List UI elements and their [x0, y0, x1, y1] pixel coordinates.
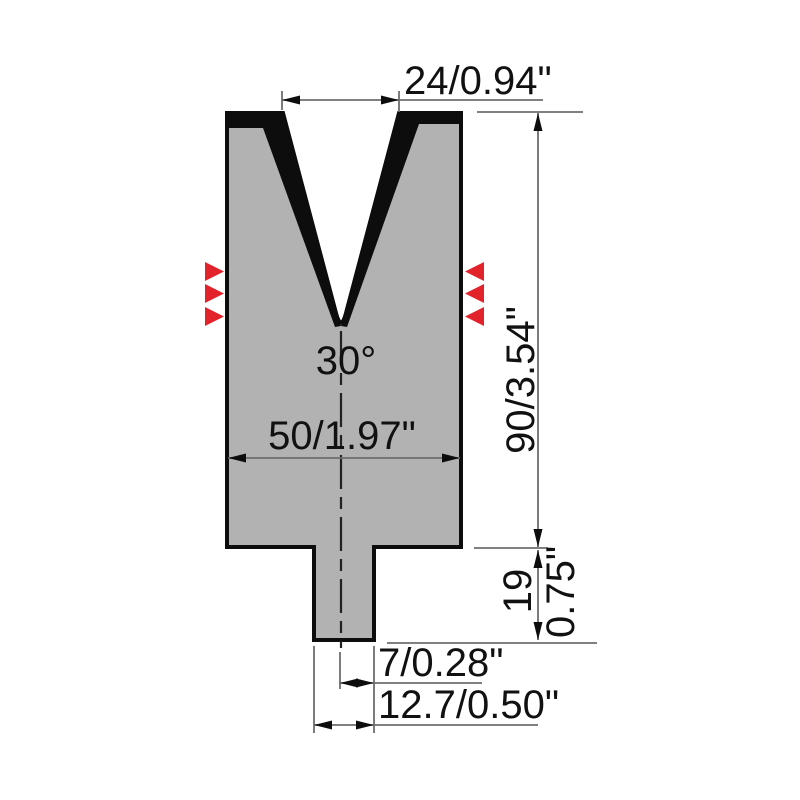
red-triangle-icon — [465, 307, 484, 326]
arrowhead-icon — [534, 529, 543, 547]
red-triangle-icon — [205, 262, 224, 281]
red-triangle-icon — [205, 284, 224, 303]
label-body-height: 90/3.54" — [499, 306, 543, 454]
label-v-angle: 30° — [316, 339, 377, 383]
label-tang-height-mm: 19 — [496, 569, 540, 614]
label-tang-width: 12.7/0.50" — [378, 683, 559, 727]
arrowhead-icon — [282, 96, 300, 105]
arrowhead-icon — [356, 721, 374, 730]
arrowhead-icon — [534, 113, 543, 131]
arrowhead-icon — [381, 96, 399, 105]
red-triangle-icon — [205, 307, 224, 326]
arrowhead-icon — [314, 721, 332, 730]
label-tang-height-in: 0.75" — [539, 546, 583, 638]
red-triangle-icon — [465, 284, 484, 303]
drawing-canvas: 24/0.94" 30° 50/1.97" 90/3.54" 19 0.75" … — [0, 0, 800, 800]
red-triangle-icon — [465, 262, 484, 281]
label-tang-half-width: 7/0.28" — [378, 641, 503, 685]
arrowhead-icon — [340, 679, 358, 688]
label-v-opening: 24/0.94" — [404, 59, 552, 103]
die-technical-drawing: 24/0.94" 30° 50/1.97" 90/3.54" 19 0.75" … — [0, 0, 800, 800]
arrowhead-icon — [356, 679, 374, 688]
label-body-width: 50/1.97" — [268, 414, 416, 458]
